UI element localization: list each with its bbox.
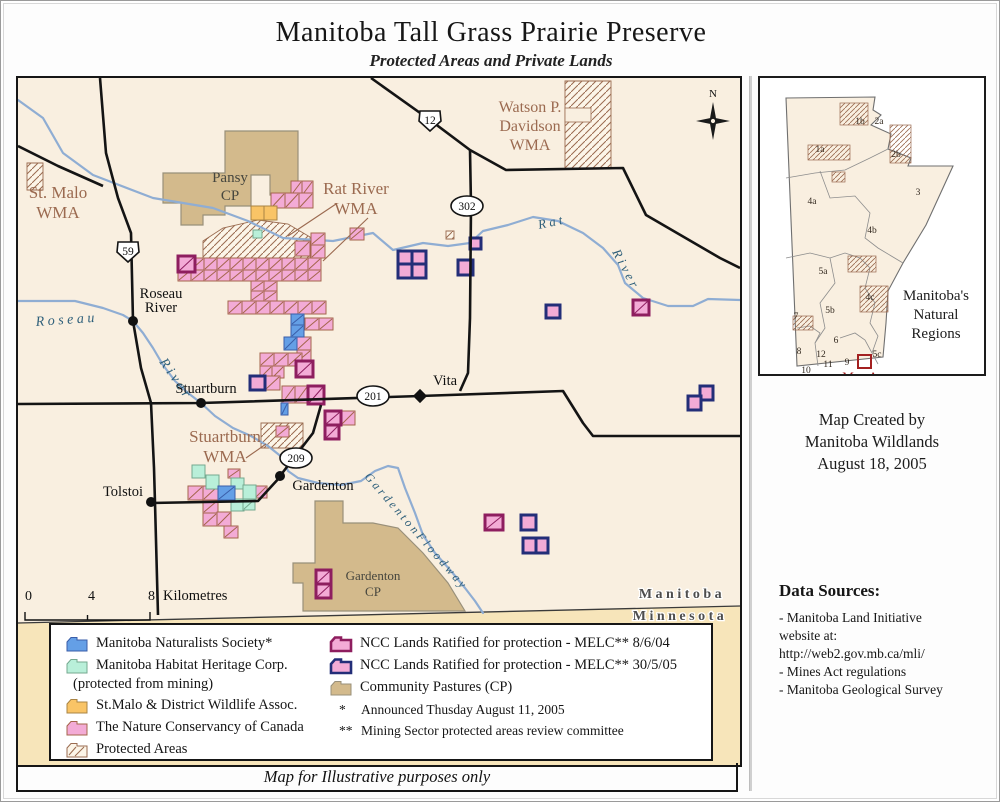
inset-hatch-area [832,172,845,182]
footnote-mark: ** [339,722,361,739]
state-label: Minnesota [633,609,728,624]
highway-shield-302: 302 [451,196,483,216]
inset-hatch-area [848,256,876,272]
parcel-b [412,251,426,264]
legend-item: Manitoba Habitat Heritage Corp. [65,656,335,675]
legend-swatch-o [65,697,89,715]
region-number: 6 [834,336,839,346]
legend-swatch-a [329,635,353,653]
data-source-item: - Manitoba Land Initiative [779,609,984,627]
wma-label: Rat River [323,179,389,198]
inset-title: Regions [911,326,960,342]
legend-item: Protected Areas [65,740,335,759]
inset-hatch-area [808,145,850,160]
town-marker [146,497,156,507]
data-sources: Data Sources: - Manitoba Land Initiative… [779,581,984,699]
legend-item-label: St.Malo & District Wildlife Assoc. [96,696,297,715]
town-marker [128,316,138,326]
protected-area-hatch [565,81,611,169]
credit-line: Map Created by [758,409,986,431]
state-label: Manitoba [639,587,725,602]
cp-label: Gardenton [346,568,401,583]
region-number: 8 [797,347,802,357]
legend-swatch-b [329,657,353,675]
parcel-o [251,206,264,220]
footnote-text: Mining Sector protected areas review com… [361,722,624,739]
svg-text:201: 201 [364,391,382,403]
region-number: 3 [916,188,921,198]
legend-right-column: NCC Lands Ratified for protection - MELC… [329,631,701,739]
parcel-b [536,538,548,553]
wma-label: Davidson [499,118,560,135]
legend-swatch-n0 [65,719,89,737]
parcel-b [412,264,426,278]
legend-item-label: The Nature Conservancy of Canada [96,718,304,737]
legend-item: NCC Lands Ratified for protection - MELC… [329,656,701,675]
parcel-b [688,396,701,410]
inset-title: Natural [914,307,959,323]
credit-line: Manitoba Wildlands [758,431,986,453]
wma-label: WMA [203,447,247,466]
town-marker [196,398,206,408]
data-source-item: http://web2.gov.mb.ca/mli/ [779,645,984,663]
sheet-divider [749,76,752,791]
svg-text:302: 302 [458,201,476,213]
legend-item: Community Pastures (CP) [329,678,701,697]
legend-item: Manitoba Naturalists Society* [65,634,335,653]
parcel-g [206,475,219,489]
map-area-label: Map Area [842,369,894,374]
footer-text: Map for Illustrative purposes only [264,767,490,787]
town-label: Tolstoi [103,484,143,500]
region-number: 11 [823,360,832,370]
data-sources-heading: Data Sources: [779,581,984,601]
page-subtitle: Protected Areas and Private Lands [1,51,981,71]
wma-label: WMA [36,203,80,222]
parcel-o [264,206,277,220]
legend-item-label: NCC Lands Ratified for protection - MELC… [360,634,670,653]
data-source-item: - Manitoba Geological Survey [779,681,984,699]
town-label: Gardenton [292,478,354,494]
cp-label: CP [365,584,381,599]
wma-label: WMA [510,137,551,154]
region-number: 2a [875,117,885,127]
region-number: 7 [794,312,799,322]
data-sources-list: - Manitoba Land Initiativewebsite at:htt… [779,609,984,699]
protected-area-hatch [446,231,454,239]
legend-swatch-c [329,679,353,697]
region-number: 9 [845,358,850,368]
cp-label: Pansy [212,170,248,186]
legend-item: St.Malo & District Wildlife Assoc. [65,696,335,715]
legend-swatch-g [65,657,89,675]
highway-shield-201: 201 [357,386,389,406]
svg-text:59: 59 [122,246,134,258]
protected-area-notch [565,108,591,122]
parcel-g [243,485,256,499]
cp-label: CP [221,188,239,204]
legend-item: The Nature Conservancy of Canada [65,718,335,737]
wma-label: St. Malo [29,183,88,202]
legend-item-label: NCC Lands Ratified for protection - MELC… [360,656,677,675]
scale-unit: Kilometres [163,588,228,604]
map-credit: Map Created by Manitoba Wildlands August… [758,409,986,475]
region-number: 5b [825,306,835,316]
data-source-item: website at: [779,627,984,645]
legend-item-label: Community Pastures (CP) [360,678,512,697]
inset-title: Manitoba's [903,288,969,304]
footer: Map for Illustrative purposes only [16,763,738,792]
credit-line: August 18, 2005 [758,453,986,475]
region-number: 5a [819,267,829,277]
region-number: 1b [855,117,865,127]
parcel-b [398,264,412,278]
map-sheet: Manitoba Tall Grass Prairie Preserve Pro… [0,0,1000,802]
footnote-text: Announced Thusday August 11, 2005 [361,701,565,718]
wma-label: Watson P. [499,99,562,116]
region-number: 5c [873,350,882,360]
legend: Manitoba Naturalists Society*Manitoba Ha… [49,623,713,761]
town-label: Vita [433,373,458,389]
legend-swatch-u [65,635,89,653]
parcel-b [521,515,536,530]
region-number: 4a [808,197,818,207]
data-source-item: - Mines Act regulations [779,663,984,681]
region-number: 12 [816,350,826,360]
town-label: River [145,300,177,316]
inset-map[interactable]: 1a1b2a2b34a4b4c5a5b5c6789101112Map AreaM… [758,76,986,376]
parcel-g [253,230,262,238]
legend-item-label: Manitoba Naturalists Society* [96,634,272,653]
page-title: Manitoba Tall Grass Prairie Preserve [1,17,981,49]
svg-text:0: 0 [25,589,32,604]
parcel-b [546,305,560,318]
parcel-b [523,538,536,553]
region-number: 4b [867,226,877,236]
legend-item-label: Protected Areas [96,740,187,759]
legend-left-column: Manitoba Naturalists Society*Manitoba Ha… [65,631,335,762]
inset-map-canvas: 1a1b2a2b34a4b4c5a5b5c6789101112Map AreaM… [760,78,984,374]
highway-shield-209: 209 [280,448,312,468]
parcel-b [398,251,412,264]
svg-text:12: 12 [424,115,436,127]
region-number: 2b [891,150,901,160]
legend-footnote: **Mining Sector protected areas review c… [339,722,701,739]
footnote-mark: * [339,701,361,718]
parcel-g [192,465,205,478]
legend-footnote: *Announced Thusday August 11, 2005 [339,701,701,718]
svg-text:209: 209 [287,453,305,465]
wma-label: WMA [334,199,378,218]
legend-swatch-p [65,741,89,759]
legend-item-sublabel: (protected from mining) [73,676,335,693]
compass-north-label: N [709,88,717,100]
svg-text:8: 8 [148,589,155,604]
svg-text:4: 4 [88,589,95,604]
legend-item: NCC Lands Ratified for protection - MELC… [329,634,701,653]
region-number: 4c [866,293,875,303]
parcel-b [250,376,265,390]
region-number: 1a [816,145,826,155]
region-number: 10 [801,366,811,374]
wma-label: Stuartburn [189,427,261,446]
town-marker [275,471,285,481]
legend-item-label: Manitoba Habitat Heritage Corp. [96,656,288,675]
